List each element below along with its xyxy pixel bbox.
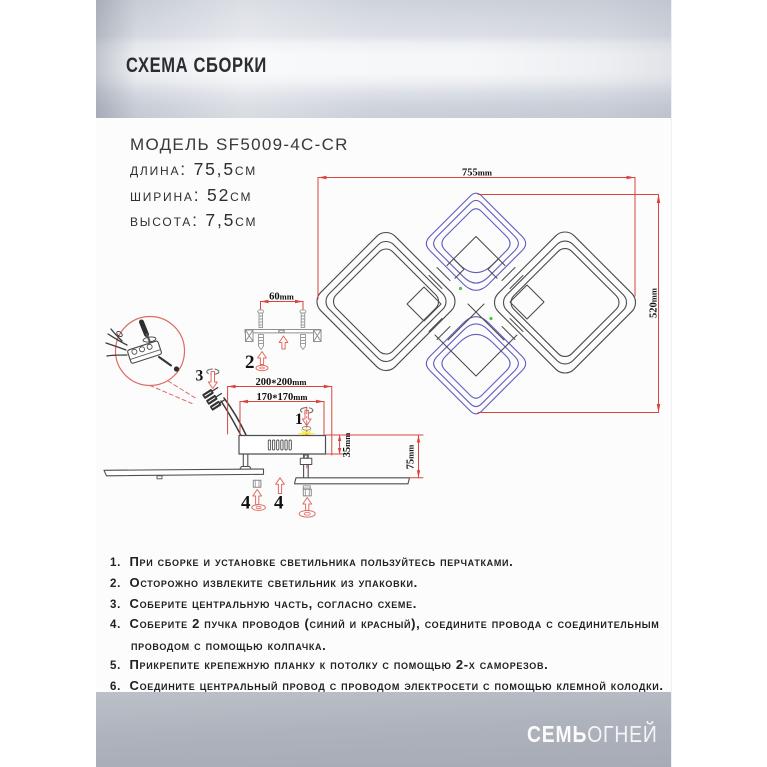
svg-text:200*200mm: 200*200mm bbox=[256, 377, 307, 389]
svg-text:520mm: 520mm bbox=[649, 288, 660, 318]
svg-text:1: 1 bbox=[295, 411, 303, 428]
svg-text:170*170mm: 170*170mm bbox=[257, 392, 308, 404]
svg-text:75mm: 75mm bbox=[406, 445, 417, 470]
svg-text:4: 4 bbox=[274, 493, 284, 514]
svg-text:4: 4 bbox=[241, 493, 251, 514]
svg-text:2: 2 bbox=[245, 352, 255, 373]
svg-text:35mm: 35mm bbox=[342, 433, 353, 458]
svg-text:755mm: 755mm bbox=[462, 168, 492, 179]
svg-text:3: 3 bbox=[196, 368, 204, 385]
svg-text:60mm: 60mm bbox=[269, 292, 294, 303]
